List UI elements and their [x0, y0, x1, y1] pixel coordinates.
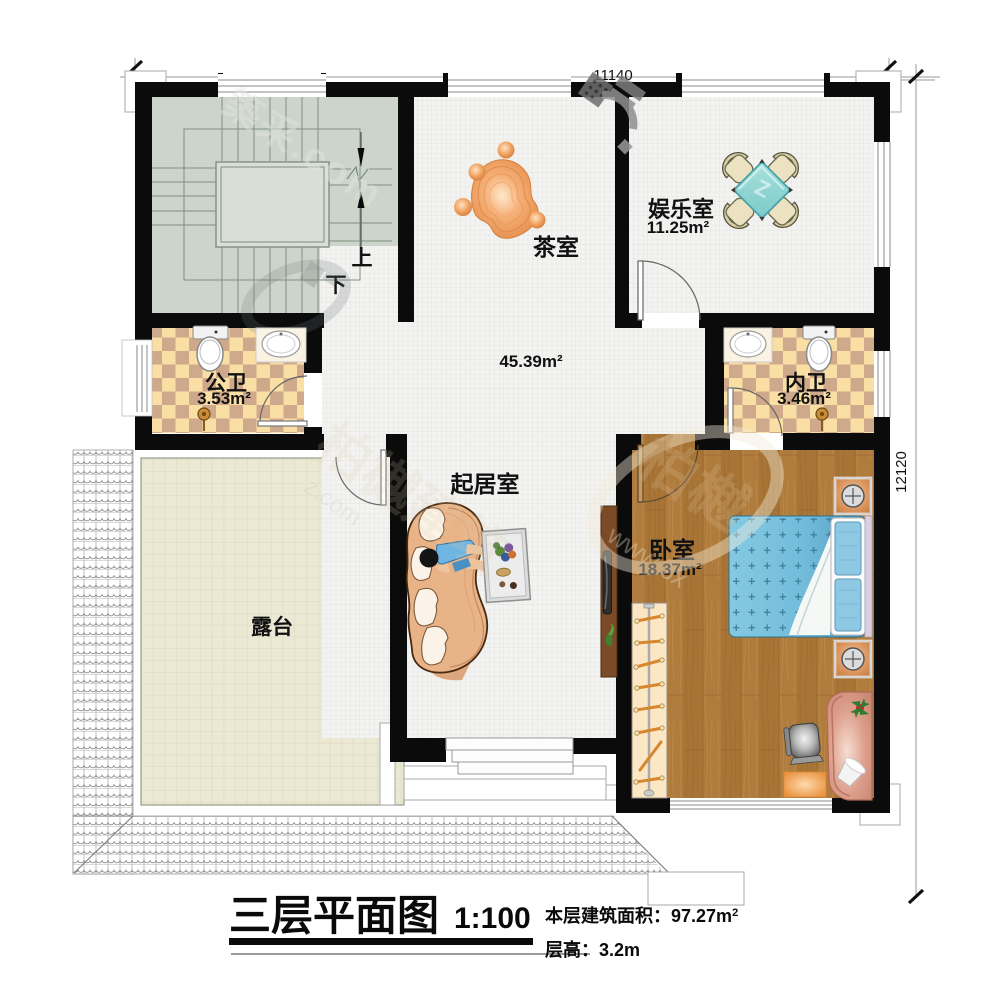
- svg-text:12120: 12120: [893, 451, 910, 493]
- svg-text:11.25m²: 11.25m²: [647, 218, 710, 237]
- svg-text:1:100: 1:100: [454, 902, 531, 935]
- svg-text:本层建筑面积：97.27m2: 本层建筑面积：97.27m2: [545, 905, 738, 926]
- svg-text:层高：3.2m: 层高：3.2m: [545, 939, 640, 960]
- svg-text:起居室: 起居室: [451, 471, 520, 497]
- svg-text:茶室: 茶室: [533, 234, 579, 260]
- svg-text:三层平面图: 三层平面图: [229, 892, 439, 939]
- svg-text:上: 上: [352, 247, 373, 270]
- svg-text:45.39m²: 45.39m²: [499, 352, 563, 371]
- svg-text:3.46m²: 3.46m²: [777, 389, 831, 408]
- svg-text:露台: 露台: [251, 615, 293, 639]
- svg-text:3.53m²: 3.53m²: [197, 389, 251, 408]
